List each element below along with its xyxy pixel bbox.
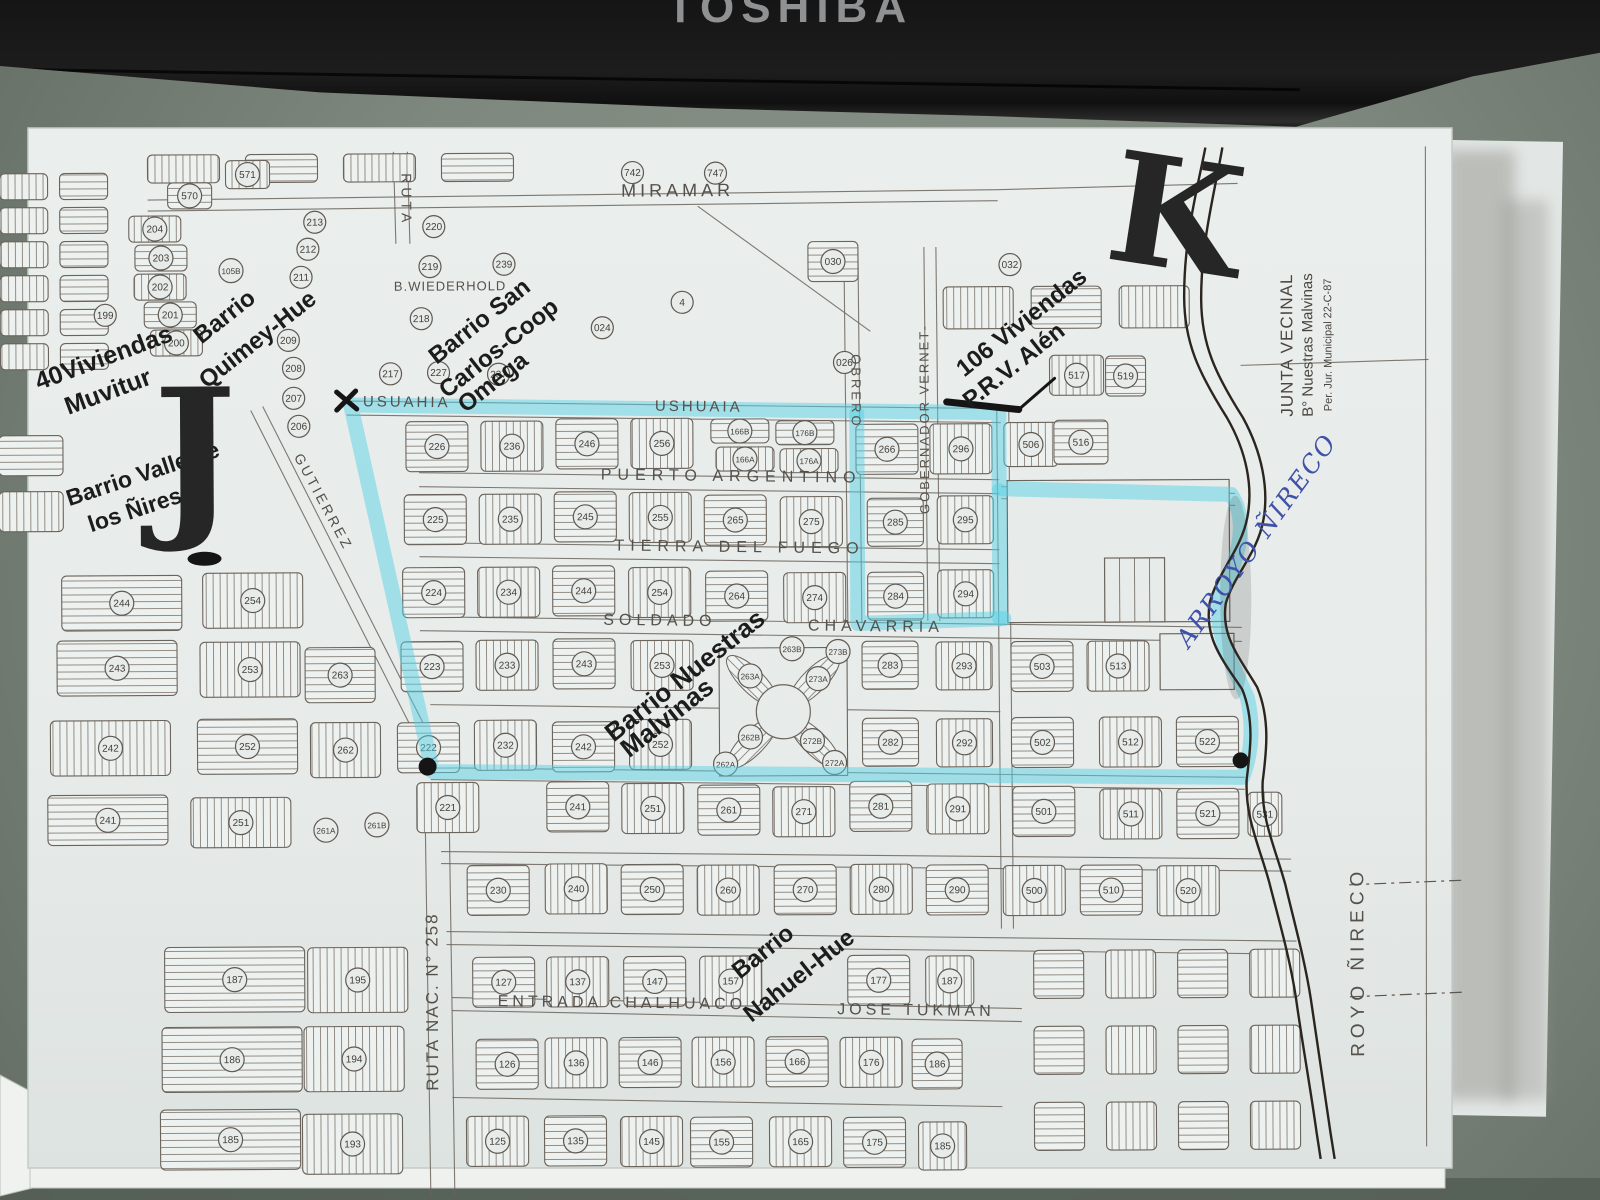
block-number: 230: [490, 886, 507, 897]
photo-scene: 226236246256166B166A176B176A266296225235…: [0, 0, 1600, 1200]
block-number: 242: [102, 744, 119, 755]
street-name: GOBERNADOR VERNET-: [916, 324, 932, 514]
block-number: 571: [239, 170, 256, 181]
map-block: [1106, 950, 1156, 998]
block-number: 186: [224, 1055, 241, 1066]
map-block: [1250, 1101, 1300, 1149]
block-number: 521: [1199, 809, 1216, 820]
map-block: [441, 153, 513, 181]
block-number: 165: [792, 1137, 809, 1148]
block-number: 245: [577, 512, 594, 523]
block-number: 272B: [803, 737, 823, 746]
block-number: 280: [873, 885, 890, 896]
block-number: 242: [575, 742, 592, 753]
block-number: 127: [495, 978, 512, 989]
block-number: 253: [242, 665, 259, 676]
block-number: 275: [803, 517, 820, 528]
block-number: 166A: [735, 455, 755, 464]
block-number: 137: [569, 977, 586, 988]
map-block: [1178, 949, 1228, 997]
block-number: 145: [643, 1137, 660, 1148]
block-number: 212: [300, 245, 317, 256]
block-number: 243: [576, 659, 593, 670]
block-number: 742: [624, 168, 641, 179]
street-name: SOLDADO: [603, 612, 716, 630]
block-number: 195: [349, 975, 366, 986]
block-number: 204: [146, 224, 163, 235]
block-number: 246: [579, 439, 596, 450]
street-name: ENTRADA CHALHUACO: [498, 993, 747, 1013]
street-name: CHAVARRIA: [808, 617, 944, 636]
block-number: 261A: [316, 827, 336, 836]
block-number: 241: [569, 802, 586, 813]
block-number: 208: [285, 364, 302, 375]
block-number: 511: [1123, 809, 1139, 820]
block-number: 254: [651, 588, 668, 599]
block-number: 291: [949, 804, 966, 815]
block-number: 263: [332, 670, 349, 681]
block-number: 224: [425, 588, 442, 599]
block-number: 202: [152, 282, 169, 293]
block-number: 252: [239, 742, 256, 753]
map-block: [147, 155, 219, 183]
block-number: 194: [346, 1054, 363, 1065]
block-number: 166: [789, 1057, 806, 1068]
block-number: 236: [504, 442, 521, 453]
street-name: USHUAIA: [655, 398, 743, 416]
block-number: 220: [425, 222, 442, 233]
block-number: 517: [1068, 371, 1085, 382]
block-number: 239: [496, 260, 513, 271]
block-number: 223: [424, 662, 441, 673]
map-block: [60, 207, 108, 233]
map-block: [0, 174, 48, 200]
junta-vecinal-imprint: Per. Jur. Municipal 22-C-87: [1322, 279, 1335, 412]
block-number: 513: [1110, 661, 1127, 672]
block-number: 185: [934, 1141, 951, 1152]
block-number: 261: [720, 805, 737, 816]
block-number: 255: [652, 513, 669, 524]
block-number: 273A: [809, 675, 829, 684]
block-number: 285: [887, 518, 904, 529]
street-name: OBRERO: [848, 354, 863, 428]
block-number: 265: [727, 515, 744, 526]
map-block: [0, 492, 63, 532]
laptop-brand-logo: TOSHIBA: [620, 0, 960, 33]
block-number: 284: [887, 592, 904, 603]
street-name: TIERRA DEL FUEGO: [614, 537, 864, 557]
block-number: 024: [594, 323, 611, 334]
map-block: [1034, 1026, 1084, 1074]
block-number: 264: [728, 591, 745, 602]
block-number: 177: [870, 976, 887, 987]
block-number: 512: [1122, 737, 1139, 748]
block-number: 156: [715, 1057, 732, 1068]
block-number: 176B: [795, 429, 815, 438]
block-number: 244: [575, 586, 592, 597]
block-number: 125: [489, 1137, 506, 1148]
block-number: 283: [882, 661, 899, 672]
block-number: 282: [882, 738, 899, 749]
street-name: RUTA NAC. N° 258: [422, 912, 442, 1090]
block-number: 241: [100, 816, 117, 827]
block-number: 272A: [825, 759, 845, 768]
block-number: 250: [644, 885, 661, 896]
block-number: 4: [679, 298, 685, 309]
block-number: 176: [863, 1058, 880, 1069]
block-number: 232: [497, 741, 514, 752]
block-number: 187: [941, 976, 958, 987]
block-number: 516: [1073, 438, 1090, 449]
block-number: 240: [568, 884, 585, 895]
block-number: 175: [866, 1138, 883, 1149]
map-block: [59, 173, 107, 199]
block-number: 251: [233, 818, 250, 829]
map-block: [1106, 1102, 1156, 1150]
street-name: ROYO ÑIRECO: [1346, 867, 1369, 1057]
map-photo: 226236246256166B166A176B176A266296225235…: [0, 0, 1600, 1200]
block-number: 570: [181, 191, 198, 202]
block-number: 263A: [741, 672, 761, 681]
block-number: 186: [929, 1059, 946, 1070]
block-number: 032: [1002, 260, 1019, 271]
block-number: 520: [1180, 886, 1197, 897]
block-number: 519: [1117, 371, 1134, 382]
block-number: 747: [707, 168, 724, 179]
block-number: 147: [646, 977, 663, 988]
block-number: 294: [957, 589, 974, 600]
block-number: 510: [1103, 885, 1120, 896]
block-number: 295: [957, 515, 974, 526]
block-number: 211: [293, 273, 309, 284]
map-block: [60, 241, 108, 267]
map-block: [0, 436, 63, 476]
block-number: 296: [953, 444, 970, 455]
block-number: 500: [1026, 886, 1043, 897]
block-number: 206: [290, 422, 307, 433]
block-number: 256: [654, 439, 671, 450]
map-block: [60, 275, 108, 301]
map-block: [1034, 1102, 1084, 1150]
block-number: 135: [567, 1136, 584, 1147]
block-number: 501: [1035, 807, 1052, 818]
block-number: 244: [113, 599, 130, 610]
block-number: 226: [429, 442, 446, 453]
street-name: MIRAMAR: [621, 180, 734, 201]
map-block: [1178, 1101, 1228, 1149]
block-number: 233: [499, 661, 516, 672]
block-number: 207: [285, 394, 302, 405]
block-number: 262: [337, 745, 354, 756]
block-number: 251: [644, 804, 661, 815]
block-number: 502: [1034, 738, 1051, 749]
map-block: [1250, 1025, 1300, 1073]
block-number: 213: [306, 218, 323, 229]
block-number: 292: [956, 738, 973, 749]
street-name: B.WIEDERHOLD: [394, 278, 506, 294]
block-number: 146: [642, 1058, 659, 1069]
block-number: 126: [499, 1060, 516, 1071]
block-number: 254: [244, 596, 261, 607]
block-number: 263B: [782, 645, 802, 654]
map-block: [0, 242, 48, 268]
block-number: 166B: [730, 427, 750, 436]
block-number: 030: [825, 257, 842, 268]
block-number: 274: [806, 593, 823, 604]
block-number: 187: [226, 975, 243, 986]
map-block: [0, 310, 48, 336]
block-number: 225: [427, 515, 444, 526]
block-number: 157: [722, 976, 739, 987]
block-number: 105B: [221, 267, 241, 276]
block-number: 235: [502, 515, 519, 526]
map-block: [1034, 950, 1084, 998]
block-number: 266: [879, 445, 896, 456]
block-number: 218: [413, 314, 430, 325]
block-number: 506: [1023, 440, 1040, 451]
map-block: [0, 208, 48, 234]
block-number: 261B: [367, 821, 387, 830]
block-number: 203: [153, 253, 170, 264]
block-number: 503: [1034, 662, 1051, 673]
block-number: 176A: [799, 457, 819, 466]
block-number: 281: [872, 802, 889, 813]
street-name: JOSE TUKMAN: [837, 1001, 995, 1020]
zone-letter: J: [140, 350, 237, 558]
block-number: 260: [720, 885, 737, 896]
junta-vecinal-imprint: B° Nuestras Malvinas: [1299, 273, 1317, 417]
block-number: 234: [500, 588, 517, 599]
block-number: 293: [956, 661, 973, 672]
map-block: [1178, 1025, 1228, 1073]
block-number: 136: [568, 1058, 585, 1069]
block-number: 262B: [741, 733, 761, 742]
block-number: 273B: [828, 648, 848, 657]
block-number: 193: [344, 1139, 361, 1150]
block-number: 217: [382, 369, 399, 380]
block-number: 243: [109, 664, 126, 675]
block-number: 270: [797, 885, 814, 896]
block-number: 199: [97, 311, 114, 322]
junta-vecinal-imprint: JUNTA VECINAL: [1277, 274, 1297, 417]
block-number: 155: [713, 1137, 730, 1148]
street-name: PUERTO ARGENTINO: [601, 466, 862, 486]
map-block: [1106, 1026, 1156, 1074]
street-name: RUTA: [398, 173, 414, 226]
map-block: [0, 276, 48, 302]
block-number: 522: [1199, 737, 1216, 748]
block-number: 185: [222, 1135, 239, 1146]
block-number: 209: [280, 336, 297, 347]
block-number: 219: [422, 262, 439, 273]
block-number: 271: [795, 807, 812, 818]
block-number: 221: [439, 803, 456, 814]
block-number: 290: [949, 885, 966, 896]
street-name: USUAHIA: [363, 393, 451, 411]
